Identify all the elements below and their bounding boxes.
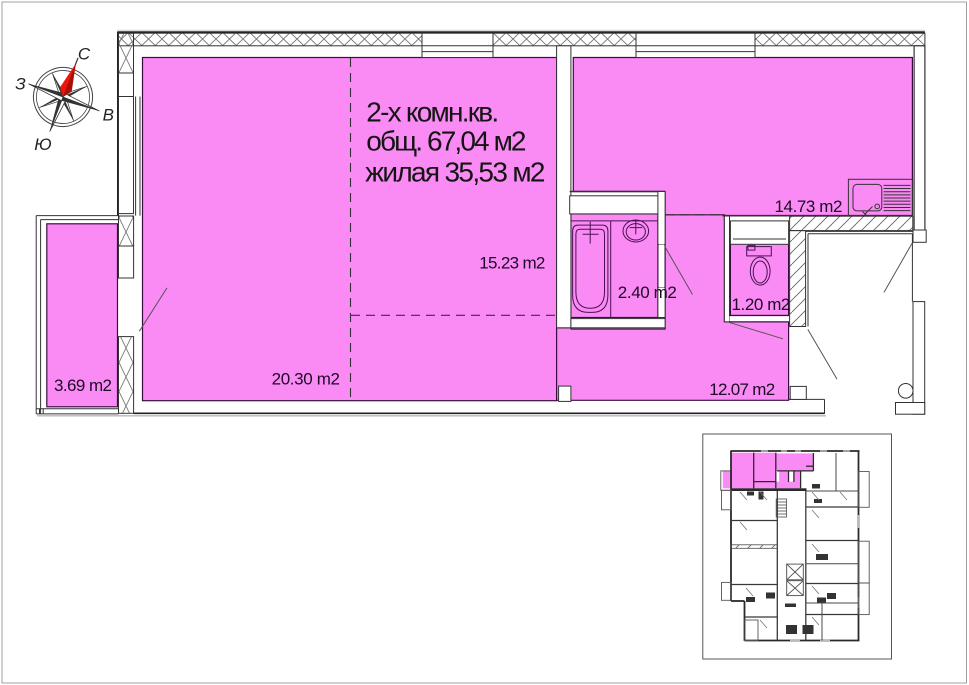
svg-text:В: В <box>103 106 114 125</box>
svg-text:1.20 m2: 1.20 m2 <box>732 295 791 314</box>
svg-text:2.40 m2: 2.40 m2 <box>618 283 677 302</box>
svg-text:3.69 m2: 3.69 m2 <box>54 376 112 395</box>
svg-text:Ю: Ю <box>34 135 51 154</box>
svg-text:20.30 m2: 20.30 m2 <box>272 369 340 388</box>
svg-text:общ. 67,04 м2: общ. 67,04 м2 <box>366 126 526 157</box>
svg-text:12.07 m2: 12.07 m2 <box>709 380 775 399</box>
svg-text:С: С <box>78 45 91 64</box>
svg-text:З: З <box>15 74 26 93</box>
svg-text:14.73 m2: 14.73 m2 <box>775 197 843 216</box>
svg-text:2-х комн.кв.: 2-х комн.кв. <box>366 96 499 127</box>
svg-text:жилая 35,53 м2: жилая 35,53 м2 <box>365 156 545 187</box>
svg-text:15.23 m2: 15.23 m2 <box>479 253 545 272</box>
